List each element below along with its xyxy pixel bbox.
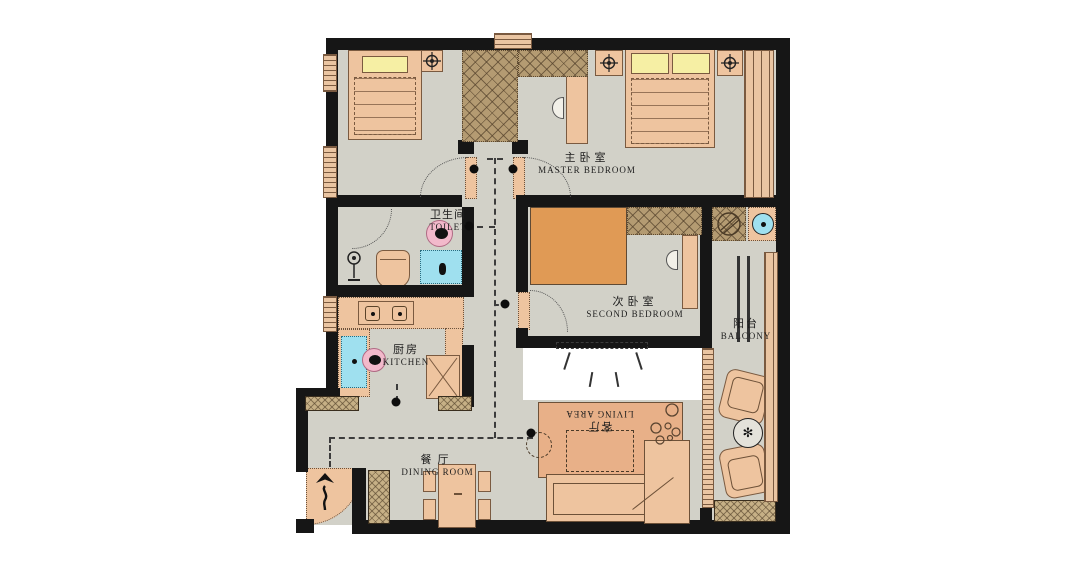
ceiling-light-icon [596, 53, 622, 73]
nightstand-topleft [421, 50, 443, 72]
washer-drum-icon [752, 213, 774, 235]
washing-machine-icon [712, 207, 746, 241]
label-balcony-en: BALCONY [714, 331, 778, 342]
double-bed-blanket [631, 78, 709, 144]
label-living-area: 客厅 LIVING AREA [552, 408, 647, 432]
sink-drain [352, 359, 357, 364]
label-toilet: 卫生间 TOILET [417, 209, 479, 233]
label-second-bedroom: 次卧室 SECOND BEDROOM [580, 296, 690, 320]
label-kitchen-zh: 厨房 [375, 344, 437, 357]
label-living-area-en: LIVING AREA [552, 408, 647, 419]
shower-tray [420, 250, 462, 284]
dining-chair-2 [423, 499, 436, 520]
sofa-chaise [644, 440, 690, 524]
armchair-seat [727, 454, 765, 492]
north-arrow-icon [314, 472, 336, 512]
burner-left [365, 306, 380, 321]
path-node [392, 398, 401, 407]
tv-line-3 [589, 372, 594, 387]
wall-right [776, 38, 790, 534]
toilet-tank-line [380, 259, 406, 260]
door-jamb-second-bedroom [518, 292, 530, 330]
bay-window-master [744, 50, 774, 198]
kitchen-threshold-right [438, 396, 472, 411]
wall-toilet-bottom [326, 285, 466, 297]
toilet-fixture [376, 250, 410, 288]
path-node [527, 429, 536, 438]
drum-center [761, 222, 766, 227]
wall-bottom [352, 520, 788, 534]
closet-vertical [462, 50, 518, 142]
ceiling-light-icon [422, 51, 442, 71]
window-top [494, 33, 532, 49]
label-second-bedroom-en: SECOND BEDROOM [580, 309, 690, 320]
tv-line-1 [563, 352, 570, 370]
shoe-cabinet [368, 470, 390, 524]
coffee-table [566, 430, 634, 472]
nightstand-master-right [717, 50, 743, 76]
label-dining-room-en: DINING ROOM [390, 467, 485, 478]
balcony-mat [714, 500, 776, 522]
tv-line-4 [615, 372, 620, 387]
window-left-2 [323, 146, 337, 198]
path-node [501, 300, 510, 309]
wall-second-bedroom-left-upper [516, 195, 528, 292]
path-main-horizontal [329, 437, 533, 439]
wall-entry-right [352, 468, 366, 528]
wall-top [326, 38, 786, 50]
ceiling-light-icon [718, 53, 742, 73]
label-kitchen: 厨房 KITCHEN [375, 344, 437, 368]
double-bed-pillow-right [672, 53, 710, 74]
single-bed-pillow [362, 56, 408, 73]
label-dining-room: 餐厅 DINING ROOM [390, 454, 485, 478]
kitchen-threshold-left [305, 396, 359, 411]
label-master-bedroom: 主卧室 MASTER BEDROOM [535, 152, 639, 176]
label-balcony: 阳台 BALCONY [714, 318, 778, 342]
label-toilet-en: TOILET [417, 222, 479, 233]
wall-closet-stub-right [512, 140, 528, 154]
tv-line-2 [635, 352, 642, 370]
wardrobe-second-bedroom [627, 207, 702, 235]
burner-right [392, 306, 407, 321]
dining-chair-4 [478, 499, 491, 520]
sliding-door-balcony [702, 348, 714, 508]
single-bed [348, 50, 422, 140]
laundry-sink [748, 207, 776, 241]
label-kitchen-en: KITCHEN [375, 357, 437, 368]
label-living-area-zh: 客厅 [552, 419, 647, 432]
wall-closet-stub-left [458, 140, 474, 154]
label-toilet-zh: 卫生间 [417, 209, 479, 222]
stove [358, 301, 414, 325]
wall-balcony-left-stub [700, 508, 712, 534]
single-bed-blanket [354, 77, 416, 135]
path-node [509, 165, 518, 174]
path-toilet-branch [477, 226, 495, 228]
table-centerline [454, 493, 462, 495]
wall-entry-stub [296, 519, 314, 533]
plant-icon: ✻ [743, 425, 754, 440]
master-desk [566, 76, 588, 144]
floor-plan-canvas: 主卧室 MASTER BEDROOM 卫生间 TOILET 厨房 KITCHE [0, 0, 1074, 576]
label-master-bedroom-zh: 主卧室 [535, 152, 639, 165]
floor-lamp-icon [346, 250, 362, 284]
path-entry [329, 437, 331, 467]
balcony-side-table: ✻ [733, 418, 763, 448]
window-left-1 [323, 54, 337, 92]
armchair-seat [726, 376, 765, 415]
decor-circles [646, 402, 686, 448]
tv-wall-unit [556, 342, 648, 349]
tatami-bed [530, 207, 627, 285]
window-balcony-right [764, 252, 778, 502]
label-second-bedroom-zh: 次卧室 [580, 296, 690, 309]
nightstand-master-left [595, 50, 623, 76]
shower-figure-icon [439, 263, 446, 275]
label-dining-room-zh: 餐厅 [390, 454, 485, 467]
closet-horizontal [518, 50, 588, 77]
label-balcony-zh: 阳台 [714, 318, 778, 331]
path-node [470, 165, 479, 174]
path-corridor [494, 158, 496, 438]
label-master-bedroom-en: MASTER BEDROOM [535, 165, 639, 176]
double-bed [625, 48, 715, 148]
window-kitchen [323, 296, 337, 332]
double-bed-pillow-left [631, 53, 669, 74]
